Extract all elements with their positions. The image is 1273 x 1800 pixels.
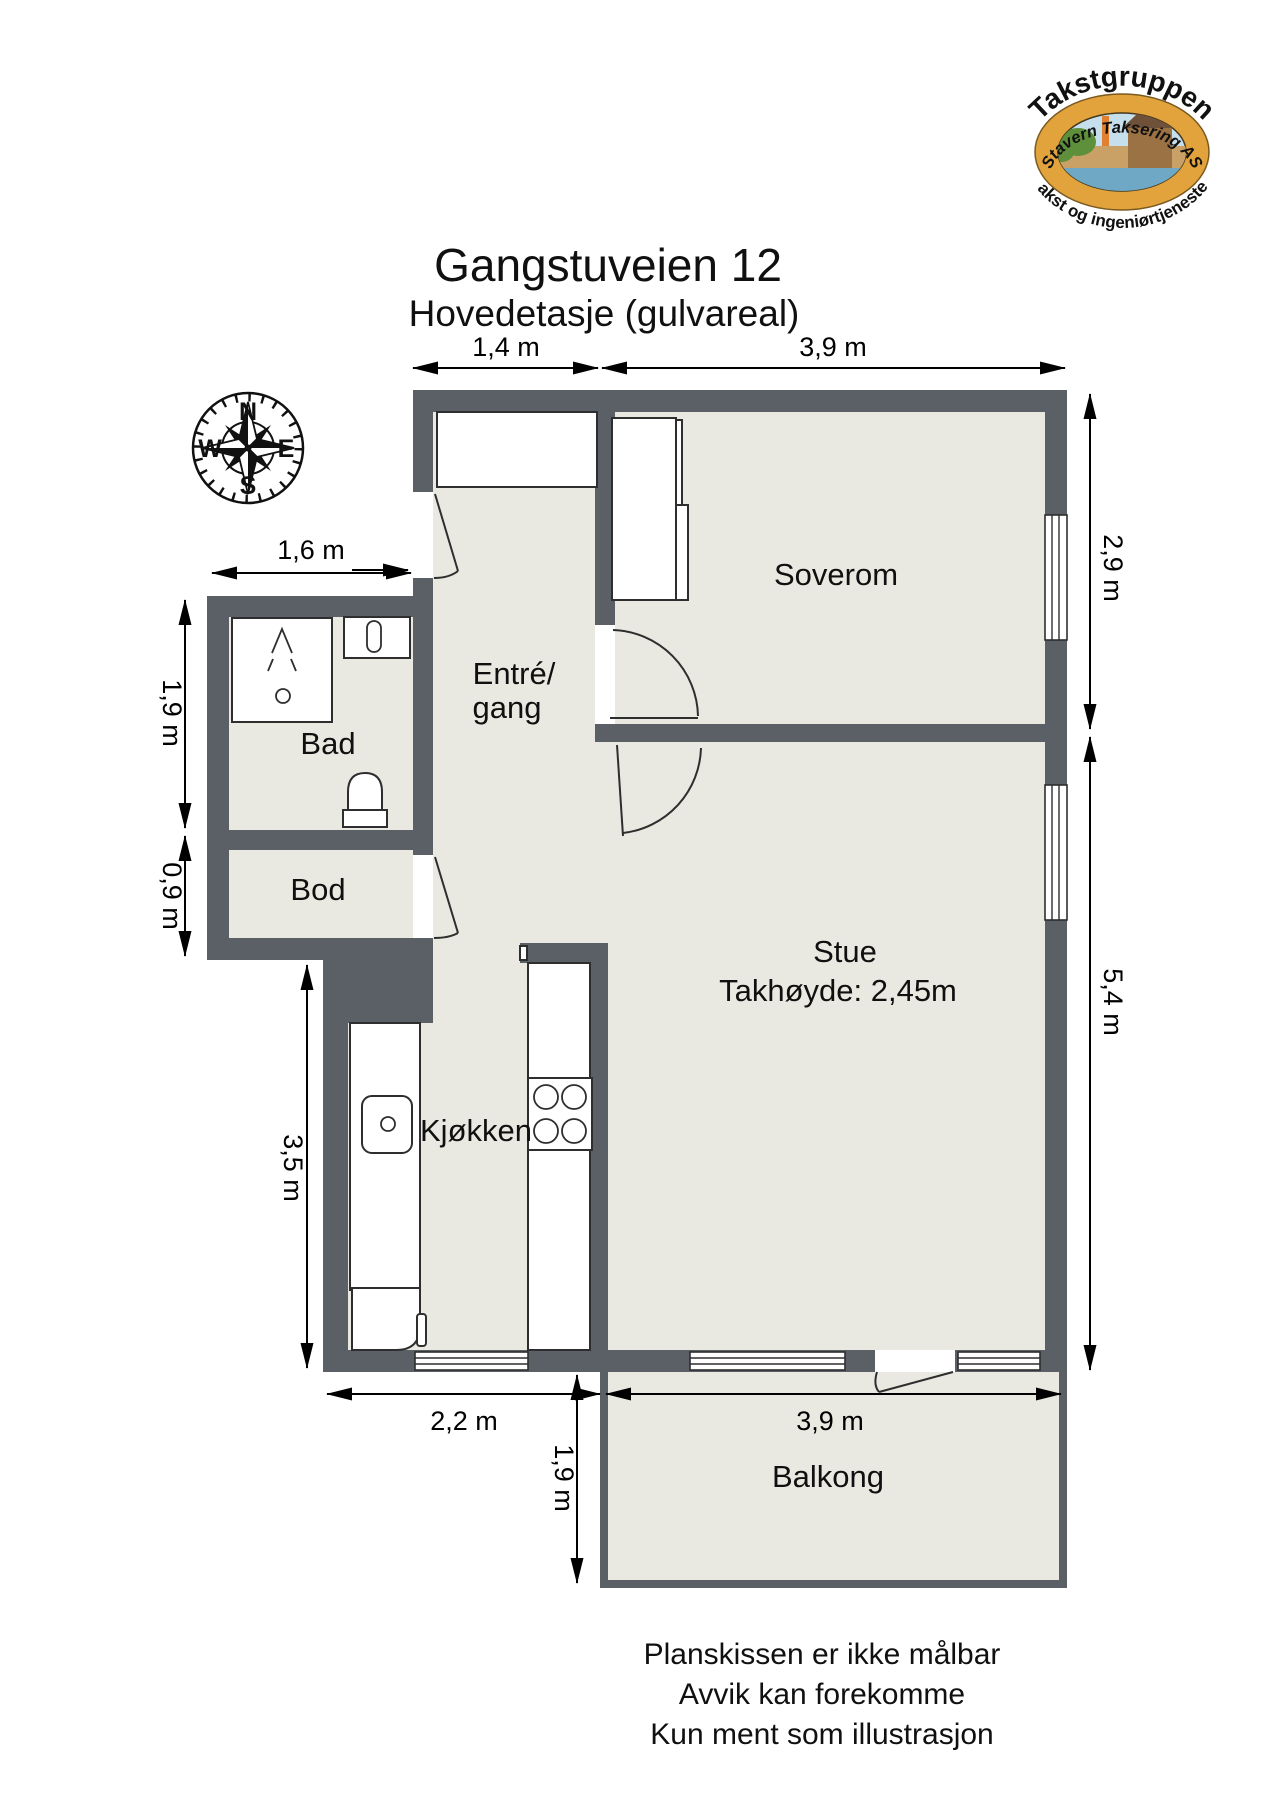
stove [528, 1078, 592, 1150]
wall-bad-bod-divider [207, 830, 413, 850]
dim-right-stue: 5,4 m [1098, 968, 1128, 1036]
page-subtitle: Hovedetasje (gulvareal) [409, 293, 800, 334]
opening-soverom [595, 625, 615, 724]
floorplan-canvas: Gangstuveien 12 Hovedetasje (gulvareal) [0, 0, 1273, 1800]
wall-balcony-right [1059, 1372, 1067, 1588]
dim-bad-width: 1,6 m [277, 535, 345, 565]
wall-kitchen-stue [590, 943, 608, 1372]
fridge-handle [417, 1314, 426, 1346]
bathroom-sink [344, 617, 410, 658]
opening-bod [413, 855, 433, 938]
label-stue: Stue [813, 934, 877, 969]
dim-balcony-depth: 1,9 m [549, 1444, 579, 1512]
wall-entry-left-lower [413, 578, 433, 855]
company-logo: Takstgruppen Stavern Taksering AS Takst … [0, 0, 1221, 232]
entry-wardrobe [437, 412, 597, 487]
label-stue-ceiling: Takhøyde: 2,45m [719, 973, 957, 1008]
wall-balcony-bottom [600, 1580, 1067, 1588]
toilet [343, 773, 387, 827]
compass-south-label: S [240, 472, 257, 500]
compass-west-label: W [198, 435, 222, 463]
wall-kitchen-left [323, 960, 348, 1372]
dim-right-soverom: 2,9 m [1098, 534, 1128, 602]
label-bod: Bod [290, 872, 345, 907]
wall-kitchen-band [520, 943, 608, 963]
floor-corridor [433, 742, 608, 963]
window-stue-bottom-a [690, 1352, 845, 1370]
wall-soverom-stue-divider [595, 724, 1045, 742]
kitchen-counter-left [350, 1023, 420, 1290]
wall-top [413, 390, 1067, 412]
wall-bad-left [207, 596, 229, 960]
dim-balcony-width: 3,9 m [796, 1406, 864, 1436]
label-soverom: Soverom [774, 557, 898, 592]
dim-kitchen-height: 3,5 m [278, 1134, 308, 1202]
floorplan-page: Gangstuveien 12 Hovedetasje (gulvareal) [0, 0, 1273, 1800]
wall-balcony-left [600, 1372, 608, 1588]
kitchen-counter-right [528, 963, 590, 1350]
footer-disclaimer: Planskissen er ikke målbar Avvik kan for… [644, 1638, 1001, 1751]
opening-balcony [875, 1350, 955, 1372]
dim-bad-height: 1,9 m [157, 679, 187, 747]
door-jamb-tab [520, 946, 527, 960]
floor-stue [608, 742, 1045, 1350]
compass-north-label: N [239, 398, 257, 426]
label-entre-line1: Entré/ [473, 656, 556, 691]
shower [232, 618, 332, 722]
logo-arc-bottom-text: Takst og ingeniørtjenester [0, 0, 1212, 232]
window-kitchen-bottom [415, 1352, 528, 1370]
wall-kitchen-corner [348, 960, 433, 1023]
wall-bod-bottom [207, 938, 433, 960]
label-balkong: Balkong [772, 1459, 884, 1494]
dim-bod-height: 0,9 m [157, 862, 187, 930]
footer-line1: Planskissen er ikke målbar [644, 1638, 1001, 1671]
page-title: Gangstuveien 12 [434, 239, 782, 291]
window-stue-bottom-b [958, 1352, 1040, 1370]
compass-east-label: E [278, 435, 295, 463]
footer-line3: Kun ment som illustrasjon [650, 1718, 993, 1751]
fridge [352, 1288, 426, 1350]
compass-rose: N E S W [193, 393, 303, 503]
soverom-wardrobe [612, 418, 688, 600]
label-entre-line2: gang [473, 690, 542, 725]
wall-bad-top [207, 596, 433, 617]
window-soverom-right [1045, 515, 1067, 640]
label-kjokken: Kjøkken [420, 1113, 532, 1148]
opening-entrance [413, 492, 433, 578]
dim-top-soverom: 3,9 m [799, 332, 867, 362]
dim-top-entre: 1,4 m [472, 332, 540, 362]
window-stue-right [1045, 785, 1067, 920]
wall-entry-left-upper [413, 412, 433, 492]
label-bad: Bad [300, 726, 355, 761]
footer-line2: Avvik kan forekomme [679, 1678, 965, 1711]
dim-kitchen-width: 2,2 m [430, 1406, 498, 1436]
